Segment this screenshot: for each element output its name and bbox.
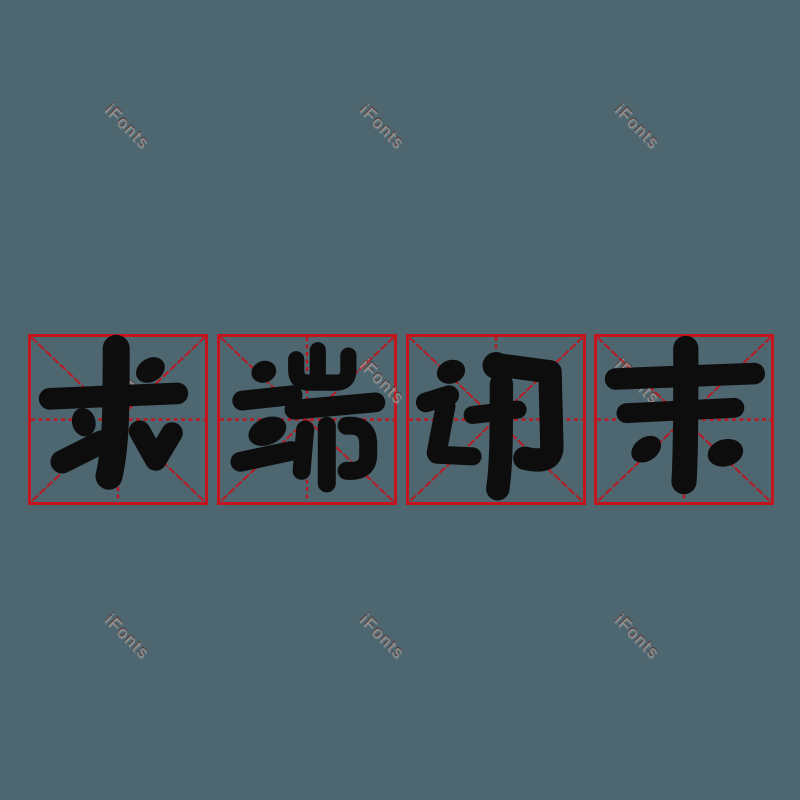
artboard: iFonts iFonts iFonts iFonts iFonts iFont…: [0, 0, 800, 800]
character-glyph-2: [217, 334, 397, 505]
character-glyph-1: [28, 334, 208, 505]
phrase: [0, 0, 800, 800]
character-glyph-3: [406, 334, 586, 505]
character-glyph-4: [594, 334, 774, 505]
